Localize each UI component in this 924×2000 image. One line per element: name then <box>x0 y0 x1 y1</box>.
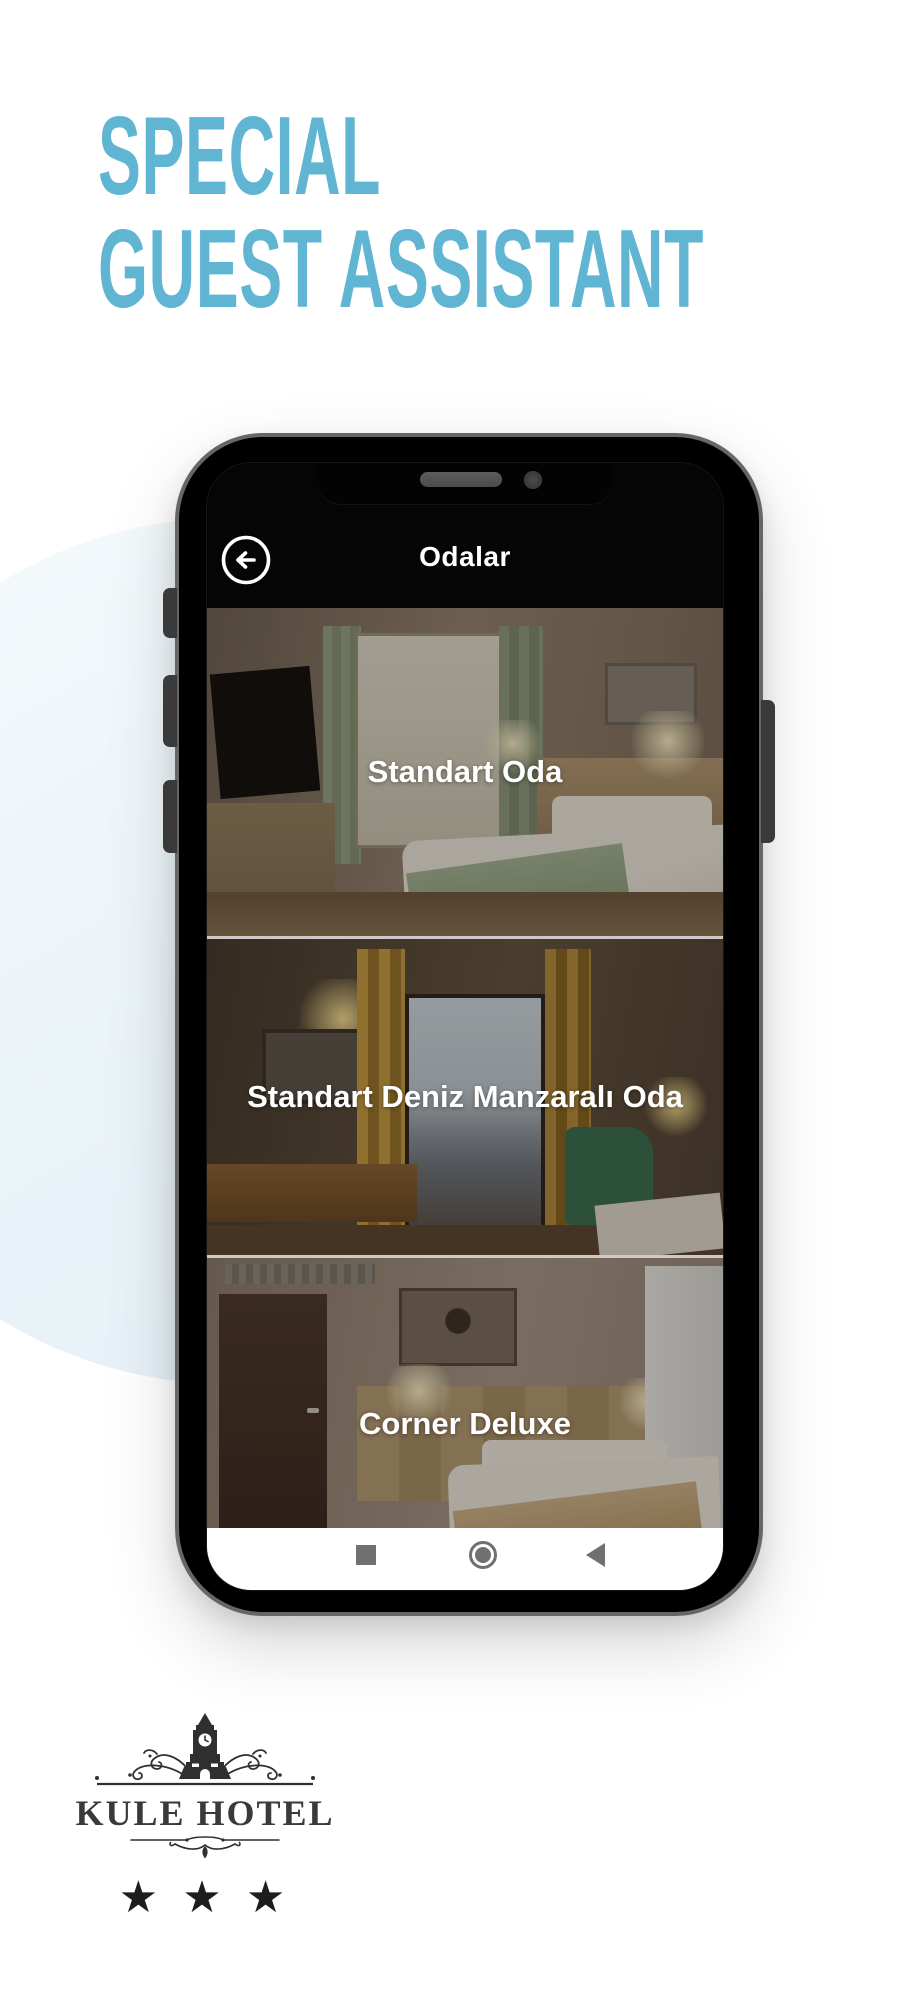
home-circle-icon[interactable] <box>469 1541 497 1569</box>
room-card-standart-oda[interactable]: Standart Oda <box>207 608 723 936</box>
side-button <box>163 588 177 638</box>
back-triangle-icon[interactable] <box>586 1543 605 1567</box>
room-label: Standart Oda <box>207 754 723 790</box>
volume-up-button <box>163 675 177 747</box>
star-rating: ★ ★ ★ <box>70 1872 340 1923</box>
promo-page: SPECIAL GUEST ASSISTANT Odalar <box>0 0 924 2000</box>
volume-down-button <box>163 780 177 853</box>
android-nav-bar <box>207 1528 723 1590</box>
recents-square-icon[interactable] <box>356 1545 376 1565</box>
app-bar-title: Odalar <box>207 541 723 573</box>
room-label: Standart Deniz Manzaralı Oda <box>207 1079 723 1115</box>
flourish-divider-icon <box>70 1834 340 1862</box>
phone-mockup: Odalar <box>175 433 763 1616</box>
notch <box>318 463 612 504</box>
room-label: Corner Deluxe <box>207 1406 723 1442</box>
speaker-grille <box>420 472 502 487</box>
phone-screen: Odalar <box>207 463 723 1590</box>
hotel-logo: KULE HOTEL ★ ★ ★ <box>70 1712 340 1923</box>
hero-title-line2: GUEST ASSISTANT <box>98 213 704 326</box>
clock-tower-emblem-icon <box>70 1712 340 1790</box>
room-card-deniz-manzarali[interactable]: Standart Deniz Manzaralı Oda <box>207 939 723 1255</box>
hotel-name: KULE HOTEL <box>70 1792 340 1834</box>
hero-title: SPECIAL GUEST ASSISTANT <box>98 100 924 326</box>
power-button <box>761 700 775 843</box>
front-camera <box>524 471 542 489</box>
room-list: Standart Oda Standart Deniz Manzaralı O <box>207 608 723 1590</box>
hero-title-line1: SPECIAL <box>98 100 704 213</box>
arrow-left-circle-icon <box>220 574 272 589</box>
